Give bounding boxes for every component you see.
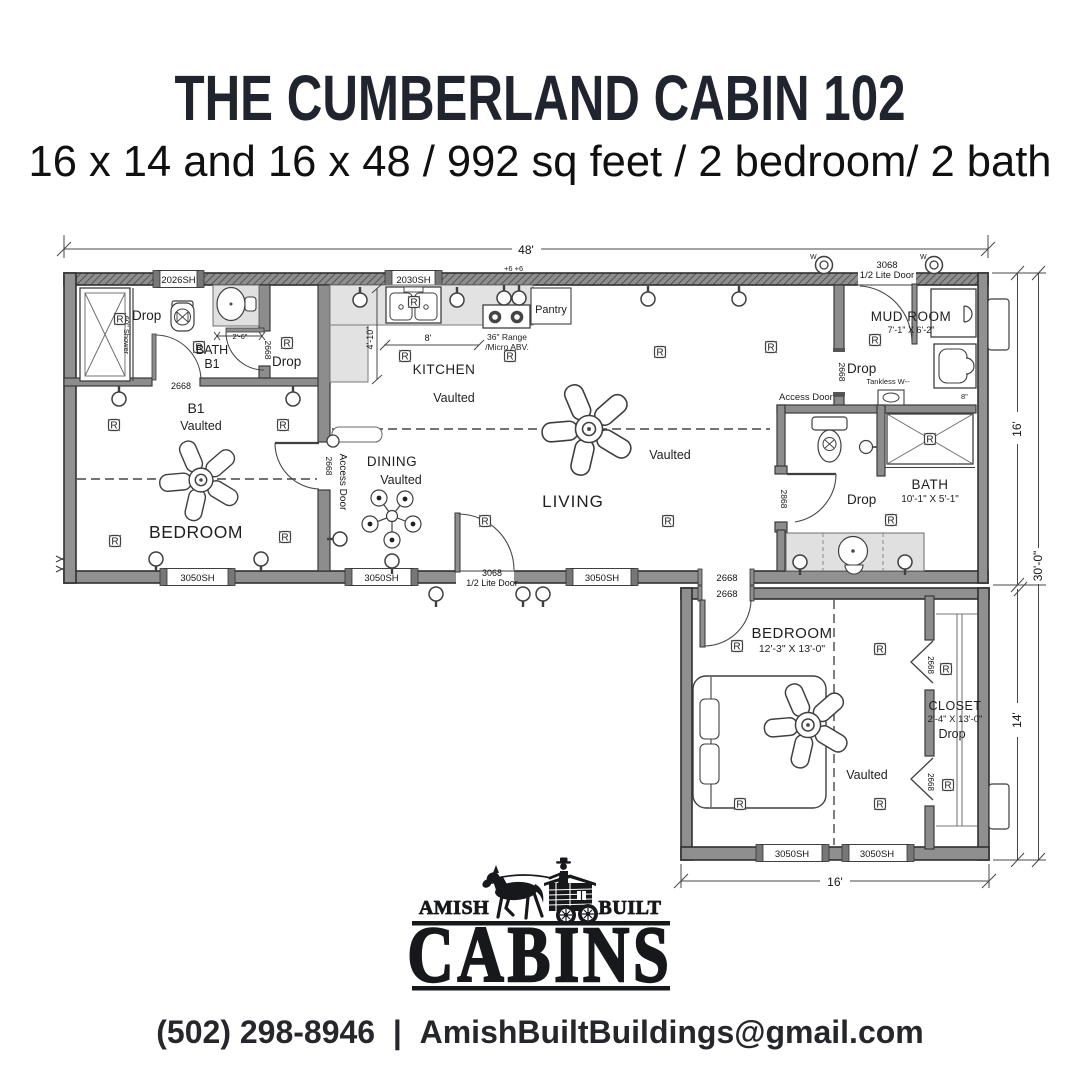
svg-text:CABINS: CABINS bbox=[407, 911, 672, 999]
